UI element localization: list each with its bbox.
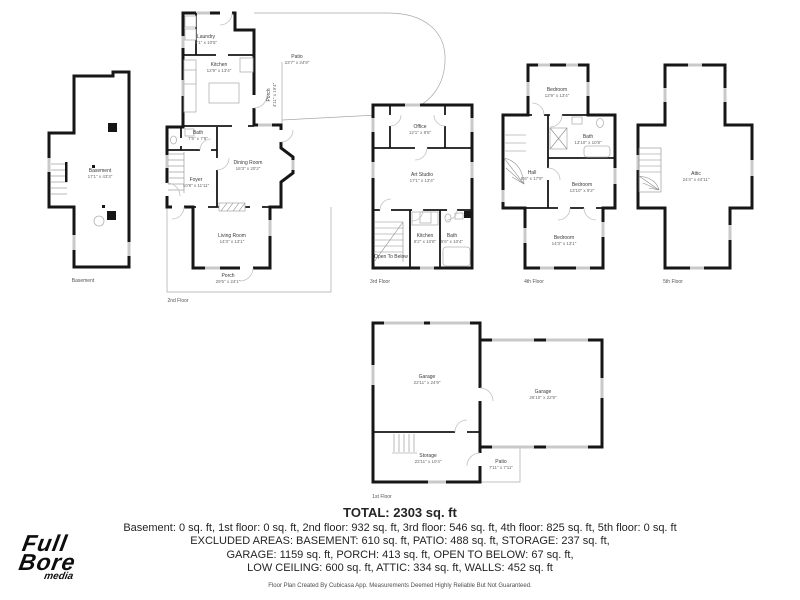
room-label-kitchen-3f: Kitchen 8'2" x 10'8" [414,233,436,245]
room-label-office: Office 12'1" x 8'5" [409,124,431,136]
room-label-patio-2f: Patio 23'7" x 24'9" [285,54,310,66]
logo-word-bore: Bore [18,553,78,572]
room-label-bath-3f: Bath 5'6" x 10'4" [441,233,463,245]
room-label-hall: Hall 8'6" x 17'9" [521,170,543,182]
sink-symbol [572,117,582,124]
room-label-living-room: Living Room 14'3" x 13'1" [218,233,246,245]
washer-symbol [185,16,196,27]
kitchen-island [209,83,239,103]
excluded-areas-text-3: LOW CEILING: 600 sq. ft, ATTIC: 334 sq. … [0,562,800,575]
room-label-bath-2f: Bath 7'5" x 7'8" [188,130,208,142]
basement-plan [45,68,155,293]
fireplace-symbol [219,203,245,211]
room-label-storage: Storage 22'11" x 10'4" [415,453,442,465]
water-heater-symbol [94,216,104,226]
room-label-dining-room: Dining Room 16'3" x 20'2" [234,160,263,172]
closet-symbol [550,128,567,149]
toilet-symbol [597,119,604,128]
room-label-garage-right: Garage 26'10" x 22'9" [529,389,556,401]
toilet-symbol [171,136,177,144]
room-label-bedroom-mid: Bedroom 13'10" x 9'2" [570,182,595,194]
room-label-bedroom-bottom: Bedroom 14'3" x 13'1" [552,235,577,247]
bathtub-symbol [443,247,470,266]
stove-symbol [184,70,196,84]
floor-tag-2f: 2nd Floor [167,298,188,304]
room-label-bath-4f: Bath 13'10" x 10'8" [574,134,601,146]
room-label-side-porch: Porch 4'11" x 19'4" [266,83,278,107]
basement-plan-drawing [45,68,155,293]
floor-tag-3f: 3rd Floor [370,279,390,285]
total-area-text: TOTAL: 2303 sq. ft [0,505,800,520]
full-bore-media-logo: Full Bore media [16,534,81,582]
floor-areas-text: Basement: 0 sq. ft, 1st floor: 0 sq. ft,… [0,522,800,535]
fridge-symbol [240,58,253,72]
room-label-basement: Basement 17'1" x 43'3" [88,168,113,180]
floor-tag-1f: 1st Floor [372,494,391,500]
room-label-art-studio: Art Studio 17'1" x 13'4" [410,172,435,184]
room-label-laundry: Laundry 8'1" x 10'5" [195,34,217,46]
excluded-areas-text-2: GARAGE: 1159 sq. ft, PORCH: 413 sq. ft, … [0,549,800,562]
room-label-foyer: Foyer 10'8" x 11'11" [183,177,210,189]
room-label-attic: Attic 24'4" x 44'11" [683,171,710,183]
disclaimer-text: Floor Plan Created By Cubicasa App. Meas… [0,583,800,589]
excluded-areas-text-1: EXCLUDED AREAS: BASEMENT: 610 sq. ft, PA… [0,535,800,548]
first-floor-plan [360,315,620,505]
kitchen-counter [184,60,196,112]
room-label-open-to-below: Open To Below [374,254,408,260]
area-summary: TOTAL: 2303 sq. ft Basement: 0 sq. ft, 1… [0,505,800,576]
floor-tag-5f: 5th Floor [663,279,683,285]
stove-symbol [420,212,431,223]
room-label-bedroom-top: Bedroom 12'9" x 13'4" [545,87,570,99]
floor-tag-4f: 4th Floor [524,279,544,285]
floor-plan-sheet: Basement 17'1" x 43'3" Basement Laundry … [0,0,800,600]
room-label-garage-left: Garage 22'11" x 24'9" [414,374,441,386]
room-label-porch: Porch 29'5" x 24'1" [216,273,241,285]
room-label-patio-1f: Patio 7'11" x 7'11" [489,459,513,471]
first-floor-plan-drawing [360,315,620,505]
room-label-kitchen-2f: Kitchen 12'9" x 13'4" [207,62,232,74]
toilet-symbol [445,214,451,222]
bathtub-symbol [584,146,610,157]
floor-tag-basement: Basement [72,278,95,284]
